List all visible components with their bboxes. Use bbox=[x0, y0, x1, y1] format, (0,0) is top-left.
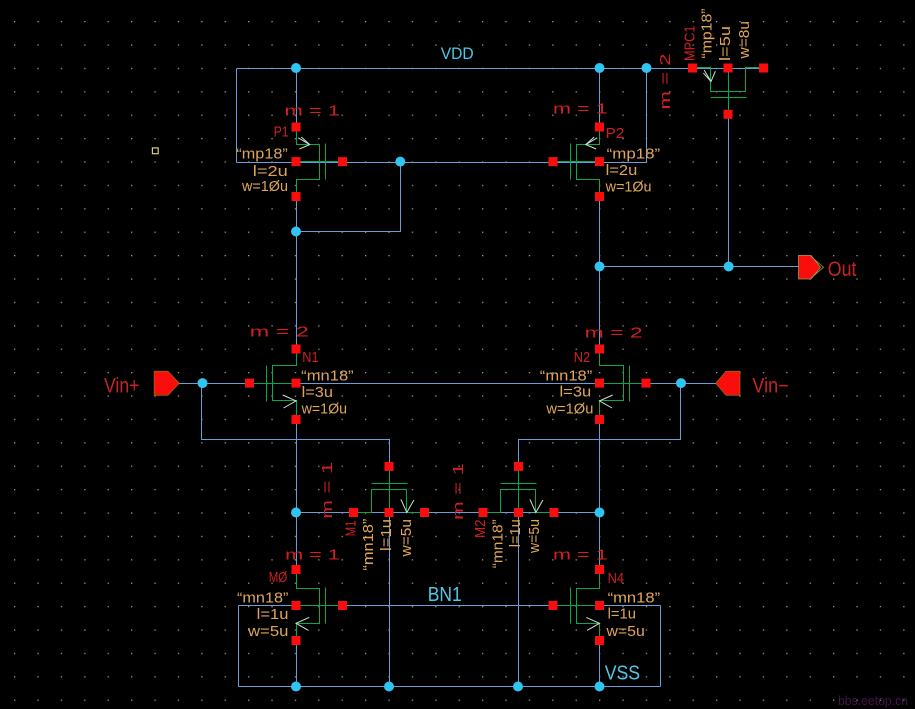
svg-text:M1: M1 bbox=[343, 520, 360, 536]
svg-text:“mn18”: “mn18” bbox=[360, 519, 377, 571]
svg-text:l=1u: l=1u bbox=[608, 606, 636, 623]
svg-text:l=1u: l=1u bbox=[378, 519, 395, 551]
svg-text:w=8u: w=8u bbox=[736, 21, 753, 60]
svg-text:m = 2: m = 2 bbox=[657, 54, 674, 110]
svg-text:MØ: MØ bbox=[269, 569, 288, 586]
svg-text:“mn18”: “mn18” bbox=[301, 368, 354, 385]
svg-text:Vin−: Vin− bbox=[752, 375, 788, 398]
svg-text:Out: Out bbox=[828, 258, 857, 281]
svg-text:w=1Øu: w=1Øu bbox=[301, 400, 347, 417]
svg-text:N1: N1 bbox=[302, 349, 318, 366]
svg-text:m = 1: m = 1 bbox=[319, 462, 336, 519]
svg-text:VDD: VDD bbox=[441, 44, 474, 63]
svg-text:m = 1: m = 1 bbox=[553, 101, 608, 118]
svg-text:m = 1: m = 1 bbox=[285, 547, 340, 564]
svg-text:“mp18”: “mp18” bbox=[236, 146, 287, 163]
svg-text:N4: N4 bbox=[608, 570, 624, 587]
svg-text:N2: N2 bbox=[574, 349, 590, 366]
svg-text:w=5u: w=5u bbox=[526, 519, 543, 554]
svg-text:m = 2: m = 2 bbox=[250, 324, 309, 341]
svg-text:m = 1: m = 1 bbox=[285, 103, 341, 120]
svg-text:w=5u: w=5u bbox=[605, 623, 644, 640]
svg-text:w=5u: w=5u bbox=[247, 623, 289, 640]
svg-text:m = 2: m = 2 bbox=[585, 325, 643, 342]
svg-text:l=3u: l=3u bbox=[560, 384, 592, 401]
svg-text:VSS: VSS bbox=[605, 663, 640, 685]
svg-text:MPC1: MPC1 bbox=[682, 26, 699, 62]
svg-text:m = 1: m = 1 bbox=[553, 547, 608, 564]
svg-text:“mp18”: “mp18” bbox=[607, 145, 661, 162]
svg-text:w=1Øu: w=1Øu bbox=[241, 178, 288, 195]
svg-text:w=5u: w=5u bbox=[398, 519, 415, 558]
svg-text:l=5u: l=5u bbox=[717, 26, 734, 61]
svg-text:“mn18”: “mn18” bbox=[540, 368, 593, 385]
svg-text:BN1: BN1 bbox=[428, 584, 462, 606]
svg-text:m = 1: m = 1 bbox=[450, 463, 467, 520]
svg-text:l=2u: l=2u bbox=[606, 162, 638, 179]
svg-text:M2: M2 bbox=[472, 519, 489, 538]
svg-text:“mn18”: “mn18” bbox=[237, 589, 288, 606]
svg-text:w=1Øu: w=1Øu bbox=[545, 401, 593, 418]
svg-text:“mn18”: “mn18” bbox=[608, 590, 661, 607]
svg-text:“mn18”: “mn18” bbox=[490, 519, 507, 568]
svg-text:l=1u: l=1u bbox=[257, 606, 289, 623]
svg-text:P2: P2 bbox=[606, 125, 625, 142]
svg-text:“mp18”: “mp18” bbox=[699, 8, 716, 58]
svg-text:bbs.eetop.cn: bbs.eetop.cn bbox=[838, 693, 908, 708]
svg-text:P1: P1 bbox=[274, 124, 289, 141]
svg-text:Vin+: Vin+ bbox=[104, 375, 139, 398]
svg-text:w=1Øu: w=1Øu bbox=[605, 179, 652, 196]
svg-text:l=3u: l=3u bbox=[302, 384, 333, 401]
svg-text:l=1u: l=1u bbox=[507, 519, 524, 547]
